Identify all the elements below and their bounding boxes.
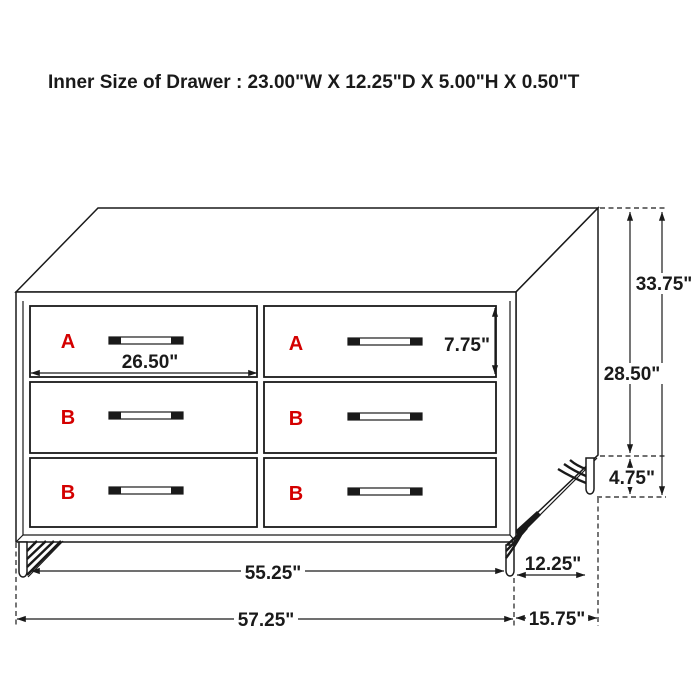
top-face-panel xyxy=(16,208,598,292)
drawer-handle-icon xyxy=(348,338,422,345)
dim-drawer-height-value: 7.75" xyxy=(444,335,490,356)
diagram-title: Inner Size of Drawer : 23.00"W X 12.25"D… xyxy=(48,72,580,93)
drawer-label: A xyxy=(61,331,75,353)
dresser-dimension-diagram-page: Inner Size of Drawer : 23.00"W X 12.25"D… xyxy=(0,0,700,700)
dim-total-height-value: 33.75" xyxy=(636,274,693,295)
drawer-label: B xyxy=(61,482,75,504)
dim-total-width-value: 57.25" xyxy=(238,610,295,631)
drawer-handle-icon xyxy=(109,412,183,419)
dim-leg-span-depth-value: 12.25" xyxy=(525,554,582,575)
leg-brace-hatch xyxy=(27,541,61,575)
drawer-handle-icon xyxy=(348,488,422,495)
drawer-b2-right: B xyxy=(264,458,496,527)
dim-heights: 33.75" 28.50" 4.75" xyxy=(597,208,695,497)
drawer-b2-left: B xyxy=(30,458,257,527)
dim-leg-span-width-value: 55.25" xyxy=(245,563,302,584)
drawer-b1-left: B xyxy=(30,382,257,453)
dim-leg-height-value: 4.75" xyxy=(609,468,655,489)
dresser-top-face xyxy=(16,208,598,301)
leg-foot xyxy=(19,542,27,577)
drawer-handle-icon xyxy=(348,413,422,420)
leg-foot xyxy=(586,458,594,494)
dim-total-depth-value: 15.75" xyxy=(529,609,586,630)
drawer-label: A xyxy=(289,333,303,355)
dresser-dimension-diagram: Inner Size of Drawer : 23.00"W X 12.25"D… xyxy=(0,0,700,700)
dim-body-height-value: 28.50" xyxy=(604,364,661,385)
drawer-label: B xyxy=(61,407,75,429)
drawer-handle-icon xyxy=(109,487,183,494)
drawer-b1-right: B xyxy=(264,382,496,453)
dim-drawer-width-value: 26.50" xyxy=(122,352,179,373)
drawer-label: B xyxy=(289,408,303,430)
drawer-handle-icon xyxy=(109,337,183,344)
drawer-label: B xyxy=(289,483,303,505)
